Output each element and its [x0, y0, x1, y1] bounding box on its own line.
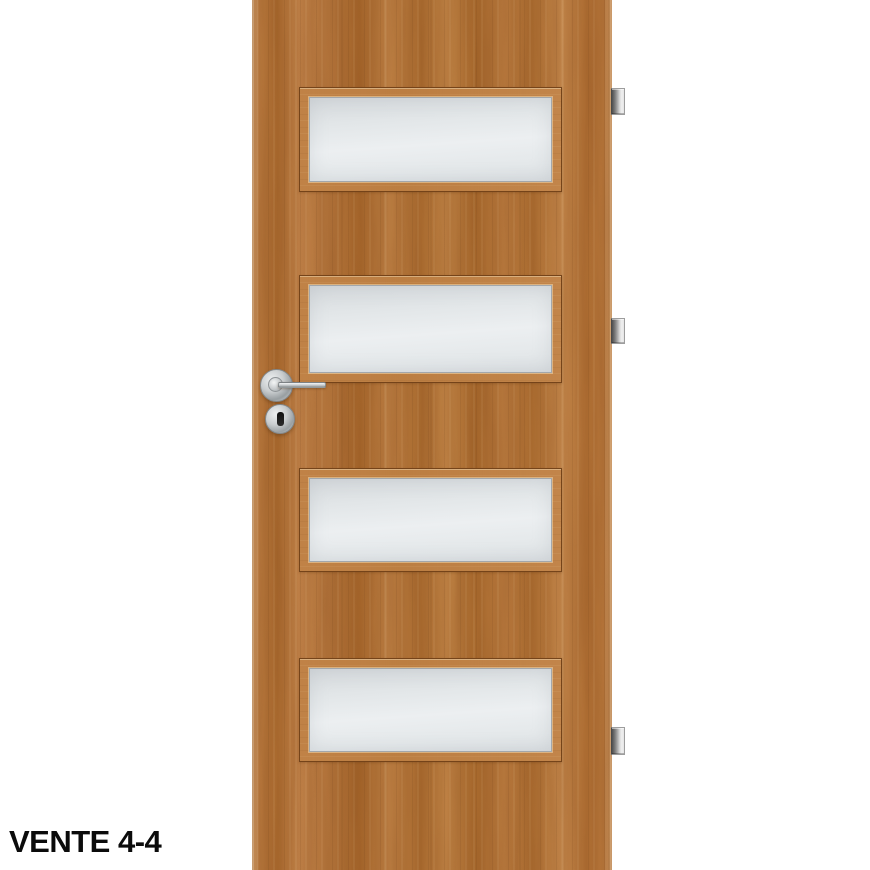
keyhole-escutcheon [265, 404, 295, 434]
glass-panel-1 [299, 87, 562, 192]
door-handle-lever-icon [278, 382, 326, 388]
glass-panel-4 [299, 658, 562, 762]
frosted-glass-3 [309, 478, 552, 562]
frosted-glass-4 [309, 668, 552, 752]
frosted-glass-1 [309, 97, 552, 182]
product-image: VENTE 4-4 [0, 0, 870, 870]
door [252, 0, 612, 870]
glass-panel-3 [299, 468, 562, 572]
product-label: VENTE 4-4 [9, 826, 161, 857]
hinge-top-icon [611, 88, 625, 115]
glass-panel-2 [299, 275, 562, 383]
frosted-glass-2 [309, 285, 552, 373]
keyhole-icon [277, 412, 284, 426]
hinge-middle-icon [611, 318, 625, 344]
hinge-bottom-icon [611, 727, 625, 755]
